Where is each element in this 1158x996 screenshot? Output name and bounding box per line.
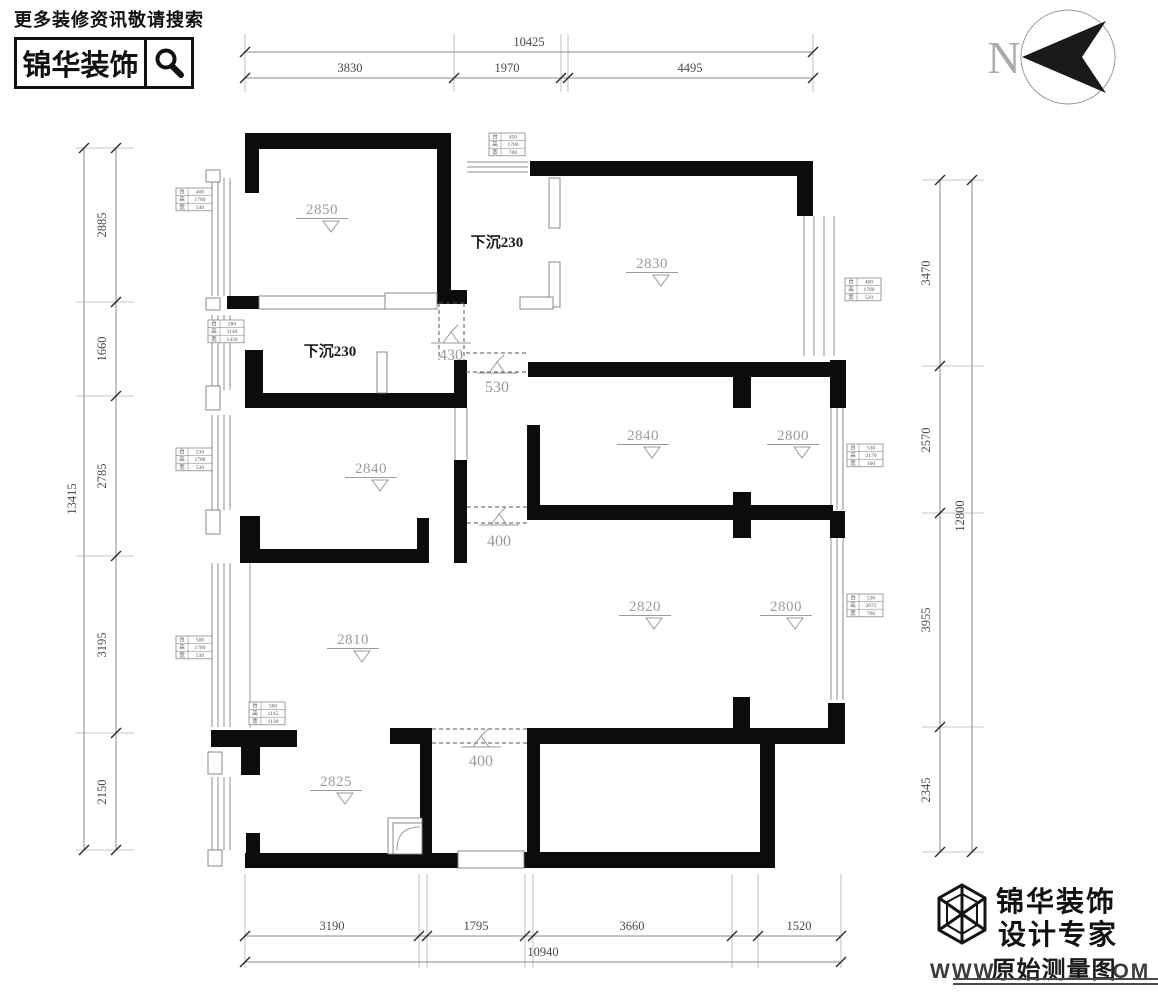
level-triangle-icon — [372, 480, 388, 491]
wall-segment — [733, 697, 750, 729]
svg-text:宽: 宽 — [211, 335, 217, 343]
promo-header: 更多装修资讯敬请搜索 锦华装饰 — [14, 6, 204, 89]
wall-segment — [255, 549, 429, 563]
partition-or-sill — [206, 298, 220, 310]
floorplan-drawing: 1042538301970449510940319017953660152013… — [0, 0, 1158, 996]
level-triangle-icon — [644, 447, 660, 458]
wall-segment — [527, 744, 540, 868]
room-elevation-value: 2810 — [337, 632, 369, 648]
opening-width-label: 400 — [487, 533, 511, 550]
room-level-label: 2800 — [760, 599, 812, 629]
svg-text:1140: 1140 — [227, 329, 238, 335]
partition-or-sill — [385, 293, 437, 309]
opening-width-label: 430 — [439, 347, 463, 364]
dimension-label: 2785 — [95, 464, 109, 489]
svg-text:高: 高 — [492, 140, 498, 148]
partition-or-sill — [458, 851, 524, 868]
dimension-label: 3830 — [338, 61, 363, 75]
logo-brand-line2: 设计专家 — [998, 913, 1118, 953]
wall-segment — [241, 747, 260, 775]
wall-segment — [437, 290, 467, 304]
svg-text:台: 台 — [850, 594, 856, 602]
north-compass: N — [987, 10, 1115, 104]
svg-text:520: 520 — [865, 295, 874, 301]
svg-text:1780: 1780 — [195, 197, 206, 203]
opening-width-label: 400 — [469, 753, 493, 770]
window-schedule-table: 台450高1700宽700 — [489, 133, 525, 156]
level-triangle-icon — [354, 651, 370, 662]
svg-text:高: 高 — [179, 455, 185, 463]
svg-text:560: 560 — [269, 704, 278, 710]
partition-or-sill — [206, 170, 220, 182]
opening-400: 400 — [467, 507, 527, 550]
wall-segment — [797, 176, 813, 216]
svg-text:高: 高 — [179, 195, 185, 203]
wall-segment — [527, 505, 833, 520]
room-level-label: 2825 — [310, 774, 362, 804]
window-schedule-table: 台560高1145宽1130 — [249, 702, 285, 725]
svg-text:台: 台 — [211, 320, 217, 328]
svg-text:宽: 宽 — [492, 148, 498, 156]
svg-text:宽: 宽 — [179, 463, 185, 471]
level-triangle-icon — [794, 447, 810, 458]
svg-text:400: 400 — [865, 280, 874, 286]
walls — [211, 133, 846, 868]
svg-text:450: 450 — [509, 135, 518, 141]
svg-text:台: 台 — [252, 702, 258, 710]
svg-text:530: 530 — [867, 596, 876, 602]
svg-text:530: 530 — [196, 653, 205, 659]
cube-logo-icon — [936, 882, 988, 948]
room-level-label: 2810 — [327, 632, 379, 662]
dimension-label: 3660 — [620, 919, 645, 933]
double-rule-divider — [953, 978, 1158, 985]
svg-text:1130: 1130 — [268, 719, 279, 725]
dimension-label: 2570 — [919, 428, 933, 453]
dimension-label: 10940 — [527, 945, 558, 959]
room-level-label: 2850 — [296, 202, 348, 232]
wall-segment — [454, 360, 467, 395]
wall-segment — [528, 362, 843, 377]
dimension-chains: 1042538301970449510940319017953660152013… — [65, 34, 984, 968]
svg-text:高: 高 — [850, 601, 856, 609]
opening-430: 430 — [431, 303, 471, 364]
svg-text:高: 高 — [211, 327, 217, 335]
wall-segment — [527, 728, 845, 744]
level-triangle-icon — [337, 793, 353, 804]
window-schedule-table: 台400高1780宽540 — [176, 188, 212, 211]
svg-text:宽: 宽 — [850, 459, 856, 467]
level-triangle-icon — [787, 618, 803, 629]
wall-segment — [523, 852, 775, 868]
north-letter: N — [987, 32, 1020, 83]
room-elevation-value: 2820 — [629, 599, 661, 615]
svg-text:1780: 1780 — [195, 457, 206, 463]
north-arrow-icon — [1022, 21, 1106, 93]
opening-400: 400 — [432, 729, 527, 770]
room-level-label: 2840 — [345, 461, 397, 491]
wall-segment — [454, 460, 467, 563]
svg-text:2170: 2170 — [866, 453, 877, 459]
wall-segment — [245, 853, 463, 868]
dimension-label: 12800 — [953, 500, 967, 531]
partition-or-sill — [259, 296, 386, 309]
room-elevation-value: 2830 — [636, 256, 668, 272]
dimension-label: 13415 — [65, 483, 79, 514]
svg-text:700: 700 — [509, 150, 518, 156]
floorplan-document: 更多装修资讯敬请搜索 锦华装饰 104253830197044951094031… — [0, 0, 1158, 996]
partition-or-sill — [208, 752, 222, 774]
svg-text:宽: 宽 — [179, 203, 185, 211]
dimension-label: 2150 — [95, 780, 109, 805]
dimension-label: 3470 — [919, 261, 933, 286]
room-elevation-value: 2840 — [627, 428, 659, 444]
svg-text:1700: 1700 — [508, 142, 519, 148]
dimension-label: 4495 — [678, 61, 703, 75]
wall-segment — [390, 728, 432, 744]
window-schedule-table: 台530高2075宽700 — [847, 594, 883, 617]
svg-text:1780: 1780 — [195, 645, 206, 651]
wall-segment — [760, 744, 775, 868]
dimension-label: 2345 — [919, 778, 933, 803]
wall-segment — [245, 393, 467, 408]
dimension-label: 1970 — [495, 61, 520, 75]
svg-text:台: 台 — [179, 448, 185, 456]
dimension-label: 10425 — [513, 35, 544, 49]
wall-openings: 430530400400 — [431, 303, 528, 770]
svg-text:400: 400 — [196, 190, 205, 196]
svg-text:700: 700 — [867, 611, 876, 617]
svg-text:高: 高 — [252, 709, 258, 717]
room-elevation-value: 2800 — [770, 599, 802, 615]
opening-width-label: 530 — [485, 379, 509, 396]
svg-text:1430: 1430 — [227, 337, 238, 343]
sunken-floor-label: 下沉230 — [304, 342, 357, 360]
room-level-label: 2800 — [767, 428, 819, 458]
svg-text:530: 530 — [196, 465, 205, 471]
svg-text:台: 台 — [850, 444, 856, 452]
search-hint-text: 更多装修资讯敬请搜索 — [14, 6, 204, 32]
svg-text:宽: 宽 — [252, 717, 258, 725]
svg-text:台: 台 — [179, 636, 185, 644]
svg-text:1780: 1780 — [864, 287, 875, 293]
partition-or-sill — [208, 850, 222, 866]
room-level-label: 2840 — [617, 428, 669, 458]
wall-segment — [527, 425, 540, 505]
svg-text:宽: 宽 — [179, 651, 185, 659]
sunken-floor-label: 下沉230 — [471, 233, 524, 251]
wall-segment — [227, 296, 259, 309]
partition-or-sill — [520, 297, 553, 309]
dimension-label: 3195 — [95, 633, 109, 658]
svg-text:1145: 1145 — [268, 711, 279, 717]
svg-text:台: 台 — [492, 133, 498, 141]
room-level-label: 2830 — [626, 256, 678, 286]
window-schedule-table: 台500高1780宽530 — [176, 636, 212, 659]
dimension-label: 1520 — [787, 919, 812, 933]
svg-text:280: 280 — [228, 322, 237, 328]
svg-text:500: 500 — [196, 638, 205, 644]
dimension-label: 3190 — [320, 919, 345, 933]
dimension-label: 2885 — [95, 213, 109, 238]
brand-search-box: 锦华装饰 — [14, 37, 194, 89]
dimension-label: 3955 — [919, 608, 933, 633]
wall-segment — [437, 149, 451, 293]
wall-segment — [211, 730, 297, 747]
search-icon — [144, 40, 191, 86]
window-schedule-table: 台530高1780宽530 — [176, 448, 212, 471]
svg-text:宽: 宽 — [850, 609, 856, 617]
dimension-label: 1660 — [95, 337, 109, 362]
brand-name: 锦华装饰 — [17, 40, 144, 86]
level-triangle-icon — [323, 221, 339, 232]
wall-segment — [245, 149, 259, 193]
room-elevation-value: 2840 — [355, 461, 387, 477]
room-elevation-value: 2800 — [777, 428, 809, 444]
partition-or-sill — [549, 178, 560, 228]
room-elevation-value: 2850 — [306, 202, 338, 218]
level-triangle-icon — [646, 618, 662, 629]
svg-text:高: 高 — [179, 643, 185, 651]
svg-text:2075: 2075 — [866, 603, 877, 609]
magnifier-glyph — [152, 46, 186, 80]
partition-or-sill — [377, 352, 387, 393]
window-schedule-table: 台400高1780宽520 — [845, 278, 881, 301]
svg-text:530: 530 — [196, 450, 205, 456]
svg-text:台: 台 — [179, 188, 185, 196]
dimension-label: 1795 — [464, 919, 489, 933]
svg-text:台: 台 — [848, 278, 854, 286]
partition-or-sill — [206, 386, 220, 410]
wall-segment — [417, 518, 429, 549]
wall-segment — [245, 133, 451, 149]
level-triangle-icon — [653, 275, 669, 286]
wall-segment — [246, 833, 260, 855]
svg-text:530: 530 — [867, 446, 876, 452]
wall-segment — [245, 350, 263, 393]
company-logo-block: 锦华装饰 设计专家 WWW原始测量图OM — [918, 870, 1158, 996]
svg-text:100: 100 — [867, 461, 876, 467]
wall-segment — [530, 161, 813, 176]
opening-530: 530 — [466, 353, 528, 396]
partition-or-sill — [206, 510, 220, 534]
room-elevation-value: 2825 — [320, 774, 352, 790]
window-schedule-table: 台280高1140宽1430 — [208, 320, 244, 343]
svg-text:540: 540 — [196, 205, 205, 211]
room-level-label: 2820 — [619, 599, 671, 629]
svg-text:高: 高 — [850, 451, 856, 459]
window-schedule-table: 台530高2170宽100 — [847, 444, 883, 467]
svg-text:高: 高 — [848, 285, 854, 293]
svg-text:宽: 宽 — [848, 293, 854, 301]
